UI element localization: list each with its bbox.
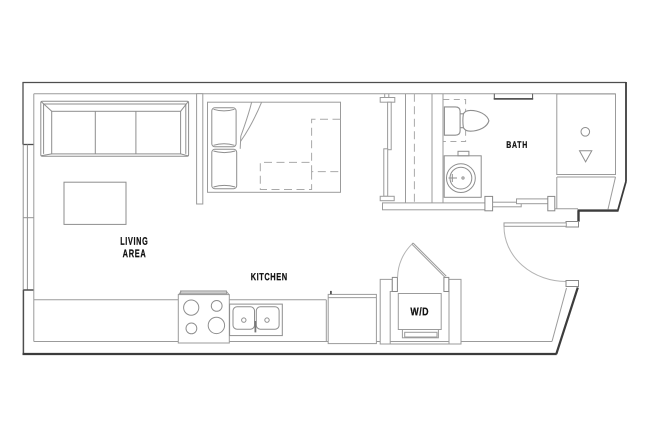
svg-text:W/D: W/D xyxy=(410,306,429,318)
svg-text:LIVING: LIVING xyxy=(120,236,148,248)
svg-text:KITCHEN: KITCHEN xyxy=(251,272,288,283)
svg-text:AREA: AREA xyxy=(123,248,147,260)
svg-text:BATH: BATH xyxy=(506,140,528,151)
